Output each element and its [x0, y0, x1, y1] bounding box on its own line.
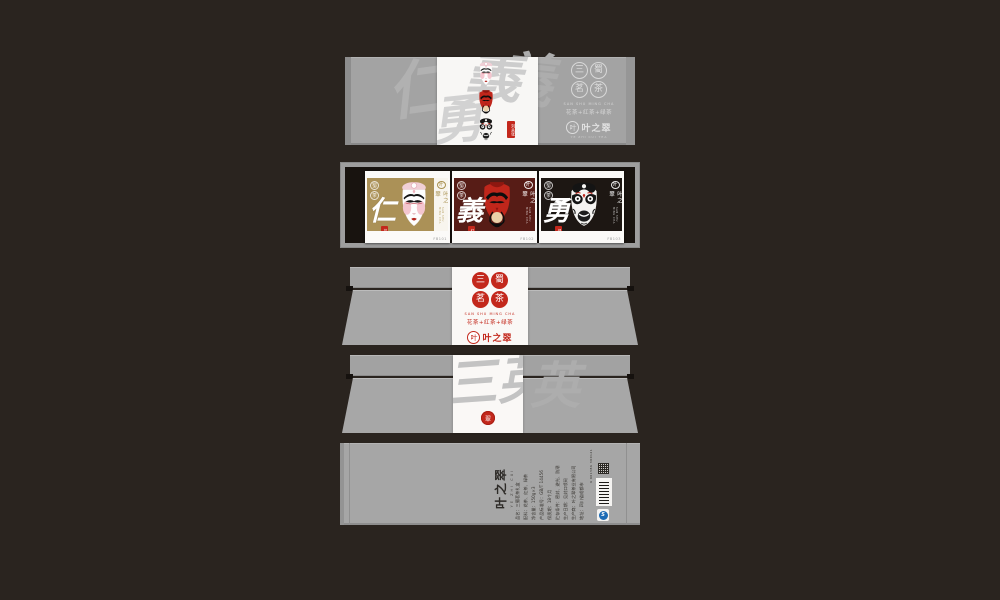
logo-name-vertical: 叶之翠 [520, 191, 535, 205]
side-logo-column: 叶 叶之翠 SAN SHU MING CHA [434, 178, 448, 231]
brand-seal-ming: 茗 [571, 81, 588, 98]
fold-line [349, 443, 350, 525]
logo-row: 叶 叶之翠 [548, 121, 630, 134]
lid-top-panel: 仁 義 義 勇 刘关张 三 蜀 茗 茶 SAN SHU MING CHA 花茶+… [345, 57, 635, 145]
virtue-character-yi: 義 [456, 198, 483, 225]
box-code: FB101 [433, 237, 447, 241]
brand-seal-shu: 蜀 [491, 272, 508, 289]
fold-line [626, 443, 627, 525]
brand-seal-san: 三 [571, 62, 588, 79]
info-line: 贮存条件：密封、避光、防潮 [554, 454, 562, 520]
box-code: FB102 [520, 237, 534, 241]
red-round-seal: 翠 [481, 411, 495, 425]
logo-name: 叶之翠 [492, 467, 509, 509]
opera-mask-zhangfei-icon [473, 117, 499, 143]
brand-pinyin: SAN SHU MING CHA [548, 102, 630, 106]
info-line: 配料：花茶、红茶、绿茶 [522, 454, 530, 520]
design-board: 仁 義 義 勇 刘关张 三 蜀 茗 茶 SAN SHU MING CHA 花茶+… [0, 0, 1000, 600]
sleeve-front-panel: 三 蜀 茗 茶 SAN SHU MING CHA 花茶+红茶+绿茶 叶 叶之翠 … [345, 267, 635, 345]
qs-logo-icon: S [599, 511, 608, 520]
tea-box-ren-artwork: 蜀 茶 仁 花茶 叶 叶之翠 SAN SHU MING CHA [367, 178, 448, 231]
brand-seal-ming: 茗 [472, 291, 489, 308]
logo-seal-icon: 叶 [611, 181, 620, 189]
info-line: 净含量：150g×3 [530, 454, 538, 520]
sleeve-back-panel: 英 三英 翠 [345, 355, 635, 433]
logo-name-vertical: 叶之翠 [433, 191, 448, 205]
barcode-bars [599, 480, 609, 504]
barcode [596, 478, 612, 506]
logo-seal-icon: 叶 [566, 121, 579, 134]
open-box-panel: 蜀 茶 仁 花茶 叶 叶之翠 SAN SHU MING CHA FB101 蜀 … [340, 162, 640, 248]
virtue-character-ren: 仁 [369, 198, 396, 225]
opera-mask-liubei-icon [393, 180, 435, 230]
tea-box-yong-artwork: 蜀 茶 勇 绿茶 叶 叶之翠 SAN SHU MING CHA [541, 178, 622, 231]
brand-seal-grid: 三 蜀 茗 茶 [548, 62, 630, 98]
opera-mask-liubei-icon [473, 61, 499, 87]
info-line: 产品标准号：GB/T 14456 [538, 454, 546, 520]
qs-certification-mark: S [597, 509, 609, 521]
brand-seal-cha: 茶 [491, 291, 508, 308]
logo-name: 叶之翠 [581, 121, 611, 134]
opera-mask-guanyu-icon [473, 89, 499, 115]
tea-type-seal: 红茶 [468, 226, 475, 231]
info-line: 生产商：叶之翠茶业有限公司 [570, 454, 578, 520]
tea-types-line: 花茶+红茶+绿茶 [452, 318, 528, 326]
tea-box-yi: 蜀 茶 義 红茶 叶 叶之翠 SAN SHU MING CHA FB102 [452, 171, 537, 243]
brand-seal-grid: 三 蜀 茗 茶 [452, 272, 528, 308]
corner-seal-shu: 蜀 [457, 181, 466, 190]
corner-seal-shu: 蜀 [544, 181, 553, 190]
fold-notch-right [627, 286, 634, 291]
logo-pinyin-vertical: SAN SHU MING CHA [612, 207, 618, 231]
logo-subtitle: YE ZHI CUI TEA [548, 135, 630, 139]
box-code: FB103 [607, 237, 621, 241]
logo-name-vertical: 叶之翠 [607, 191, 622, 205]
tea-box-yong: 蜀 茶 勇 绿茶 叶 叶之翠 SAN SHU MING CHA FB103 [539, 171, 624, 243]
brand-seal-shu: 蜀 [590, 62, 607, 79]
tea-box-yi-artwork: 蜀 茶 義 红茶 叶 叶之翠 SAN SHU MING CHA [454, 178, 535, 231]
tea-type-seal: 花茶 [381, 226, 388, 231]
info-line: 品名：三蜀茗茶礼盒 [514, 454, 522, 520]
side-watermark-character: 英 [530, 361, 580, 411]
logo-pinyin-vertical: SAN SHU MING CHA [438, 207, 444, 231]
sleeve-white-band: 三英 翠 [453, 355, 523, 433]
tea-box-ren: 蜀 茶 仁 花茶 叶 叶之翠 SAN SHU MING CHA FB101 [365, 171, 450, 243]
logo-name: 叶之翠 [482, 331, 512, 344]
logo-seal-icon: 叶 [437, 181, 446, 189]
tea-type-seal: 绿茶 [555, 226, 562, 231]
lid-white-strip: 義 勇 刘关张 [437, 57, 538, 145]
product-info-block: 品名：三蜀茗茶礼盒 配料：花茶、红茶、绿茶 净含量：150g×3 产品标准号：G… [514, 454, 598, 520]
fold-notch-left [346, 374, 353, 379]
calligraphy-watermark-sanying: 三英 [453, 355, 523, 417]
virtue-character-yong: 勇 [543, 198, 570, 225]
fold-notch-left [346, 286, 353, 291]
info-line: 保质期：18个月 [546, 454, 554, 520]
rotated-logo-block: 叶之翠 YE ZHI CUI [493, 453, 513, 523]
brand-block-light: 三 蜀 茗 茶 SAN SHU MING CHA 花茶+红茶+绿茶 叶 叶之翠 … [548, 62, 630, 139]
logo-pinyin-vertical: SAN SHU MING CHA [525, 207, 531, 231]
brand-seal-san: 三 [472, 272, 489, 289]
logo-row: 叶 叶之翠 [452, 331, 528, 344]
barcode-number: 6 901586 300121 [589, 449, 593, 483]
logo-seal-icon: 叶 [467, 331, 480, 344]
brand-pinyin: SAN SHU MING CHA [452, 312, 528, 316]
tea-types-line: 花茶+红茶+绿茶 [548, 108, 630, 116]
qr-code-icon [598, 463, 609, 474]
logo-seal-icon: 叶 [524, 181, 533, 189]
fold-notch-right [627, 374, 634, 379]
corner-seal-shu: 蜀 [370, 181, 379, 190]
side-logo-column: 叶 叶之翠 SAN SHU MING CHA [608, 178, 622, 231]
sleeve-white-band: 三 蜀 茗 茶 SAN SHU MING CHA 花茶+红茶+绿茶 叶 叶之翠 … [452, 267, 528, 345]
red-seal-tag: 刘关张 [507, 121, 515, 138]
side-logo-column: 叶 叶之翠 SAN SHU MING CHA [521, 178, 535, 231]
info-line: 地址：四川省成都市 [578, 454, 586, 520]
info-line: 生产日期：见封口喷码 [562, 454, 570, 520]
base-info-panel: 叶之翠 YE ZHI CUI 品名：三蜀茗茶礼盒 配料：花茶、红茶、绿茶 净含量… [340, 443, 640, 525]
brand-seal-cha: 茶 [590, 81, 607, 98]
